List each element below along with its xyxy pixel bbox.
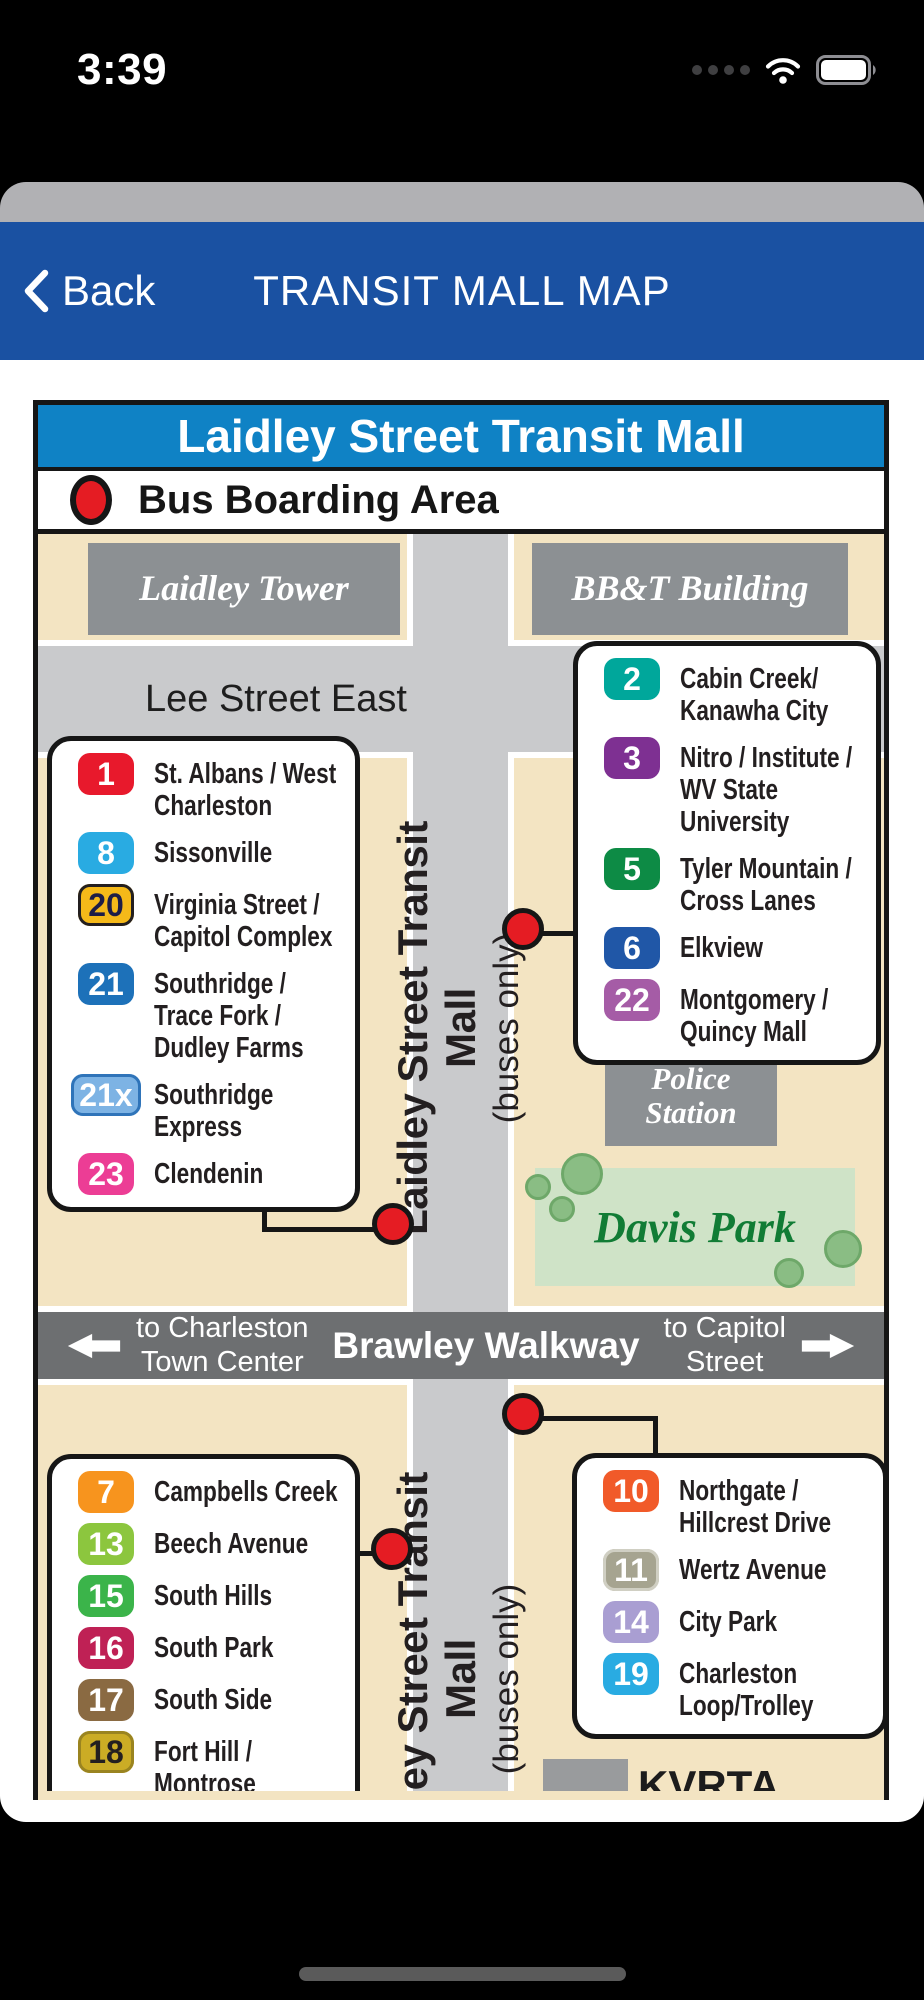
route-badge: 21x: [71, 1074, 140, 1116]
east-arrow-icon: [800, 1331, 856, 1361]
route-badge: 16: [78, 1627, 134, 1669]
route-item: 10Northgate / Hillcrest Drive: [589, 1470, 873, 1539]
nav-bar: Back TRANSIT MALL MAP: [0, 222, 924, 360]
route-badge: 3: [604, 737, 660, 779]
route-label: Nitro / Institute / WV State University: [680, 737, 852, 838]
phone-screen: 3:39 Back TRANSIT MALL MAP: [0, 0, 924, 2000]
map-title: Laidley Street Transit Mall: [38, 405, 884, 471]
route-label: South Park: [154, 1627, 273, 1664]
cellular-signal-icon: [692, 65, 750, 75]
to-charleston-label: to Charleston Town Center: [136, 1312, 309, 1379]
route-badge: 1: [78, 753, 134, 795]
route-label: South Side: [154, 1679, 272, 1716]
route-badge: 8: [78, 832, 134, 874]
route-label: Cabin Creek/ Kanawha City: [680, 658, 828, 727]
route-box-upper-left: 1St. Albans / West Charleston8Sissonvill…: [47, 736, 360, 1212]
route-box-upper-right: 2Cabin Creek/ Kanawha City3Nitro / Insti…: [573, 641, 881, 1065]
route-badge: 13: [78, 1523, 134, 1565]
route-item: 21Southridge / Trace Fork / Dudley Farms: [64, 963, 345, 1064]
page-title: TRANSIT MALL MAP: [0, 222, 924, 360]
connector-line: [653, 1416, 658, 1458]
app-card-top-strip: [0, 182, 924, 222]
clock: 3:39: [77, 45, 167, 95]
brawley-walkway-labels: to Charleston Town Center Brawley Walkwa…: [38, 1306, 884, 1385]
tree-icon: [561, 1153, 603, 1195]
route-box-lower-right: 10Northgate / Hillcrest Drive11Wertz Ave…: [572, 1453, 884, 1739]
route-item: 3Nitro / Institute / WV State University: [590, 737, 866, 838]
battery-icon: [816, 55, 878, 85]
route-item: 19Charleston Loop/Trolley: [589, 1653, 873, 1722]
route-item: 23Clendenin: [64, 1153, 345, 1195]
tree-icon: [824, 1230, 862, 1268]
home-indicator[interactable]: [299, 1967, 626, 1981]
route-badge: 20: [78, 884, 134, 926]
davis-park-label: Davis Park: [594, 1202, 796, 1253]
route-label: Northgate / Hillcrest Drive: [679, 1470, 831, 1539]
route-item: 16South Park: [64, 1627, 345, 1669]
route-label: South Hills: [154, 1575, 272, 1612]
route-badge: 17: [78, 1679, 134, 1721]
route-label: Clendenin: [154, 1153, 263, 1190]
laidley-street-label-lower: Laidley Street Transit Mall (buses only): [389, 1466, 527, 1791]
wifi-icon: [763, 55, 803, 85]
route-label: Wertz Avenue: [679, 1549, 826, 1586]
route-label: Sissonville: [154, 832, 272, 869]
route-label: Virginia Street / Capitol Complex: [154, 884, 332, 953]
building-bbt: BB&T Building: [532, 543, 848, 635]
route-label: St. Albans / West Charleston: [154, 753, 336, 822]
route-item: 22Montgomery / Quincy Mall: [590, 979, 866, 1048]
route-item: 2Cabin Creek/ Kanawha City: [590, 658, 866, 727]
route-item: 18Fort Hill / Montrose: [64, 1731, 345, 1791]
route-label: Charleston Loop/Trolley: [679, 1653, 813, 1722]
route-badge: 23: [78, 1153, 134, 1195]
route-label: Montgomery / Quincy Mall: [680, 979, 828, 1048]
route-item: 7Campbells Creek: [64, 1471, 345, 1513]
route-item: 17South Side: [64, 1679, 345, 1721]
content-area: Laidley Street Transit Mall Bus Boarding…: [0, 360, 924, 1822]
to-capitol-label: to Capitol Street: [663, 1312, 786, 1379]
route-badge: 2: [604, 658, 660, 700]
route-badge: 15: [78, 1575, 134, 1617]
route-label: Elkview: [680, 927, 763, 964]
bus-boarding-dot-icon: [70, 475, 112, 525]
route-label: Southridge / Trace Fork / Dudley Farms: [154, 963, 304, 1064]
connector-line: [528, 1416, 658, 1421]
route-item: 21xSouthridge Express: [64, 1074, 345, 1143]
transit-mall-map-image[interactable]: Laidley Street Transit Mall Bus Boarding…: [33, 400, 889, 1800]
tree-icon: [549, 1196, 575, 1222]
route-item: 5Tyler Mountain / Cross Lanes: [590, 848, 866, 917]
route-item: 13Beech Avenue: [64, 1523, 345, 1565]
route-badge: 19: [603, 1653, 659, 1695]
brawley-walkway-label: Brawley Walkway: [332, 1325, 639, 1367]
route-label: Tyler Mountain / Cross Lanes: [680, 848, 852, 917]
route-label: Fort Hill / Montrose: [154, 1731, 256, 1791]
route-item: 15South Hills: [64, 1575, 345, 1617]
route-badge: 7: [78, 1471, 134, 1513]
route-badge: 14: [603, 1601, 659, 1643]
bus-boarding-stop: [502, 1393, 544, 1435]
route-item: 8Sissonville: [64, 832, 345, 874]
building-laidley-tower: Laidley Tower: [88, 543, 400, 635]
route-badge: 10: [603, 1470, 659, 1512]
tree-icon: [525, 1174, 551, 1200]
route-label: City Park: [679, 1601, 777, 1638]
kvrta-label: KVRTA: [638, 1762, 780, 1791]
route-item: 6Elkview: [590, 927, 866, 969]
route-badge: 22: [604, 979, 660, 1021]
route-item: 20Virginia Street / Capitol Complex: [64, 884, 345, 953]
route-label: Beech Avenue: [154, 1523, 308, 1560]
bus-boarding-stop: [371, 1528, 413, 1570]
route-badge: 18: [78, 1731, 134, 1773]
legend-label: Bus Boarding Area: [138, 478, 499, 523]
map-canvas: Laidley Street Transit Mall (buses only)…: [38, 534, 884, 1791]
laidley-street-label-upper: Laidley Street Transit Mall (buses only): [389, 815, 527, 1241]
bus-boarding-stop: [502, 908, 544, 950]
route-item: 14City Park: [589, 1601, 873, 1643]
route-item: 11Wertz Avenue: [589, 1549, 873, 1591]
tree-icon: [774, 1258, 804, 1288]
route-label: Southridge Express: [154, 1074, 273, 1143]
bus-boarding-stop: [372, 1203, 414, 1245]
route-badge: 11: [603, 1549, 659, 1591]
west-arrow-icon: [66, 1331, 122, 1361]
status-bar: 3:39: [0, 0, 924, 130]
route-badge: 6: [604, 927, 660, 969]
route-box-lower-left: 7Campbells Creek13Beech Avenue15South Hi…: [47, 1454, 360, 1791]
legend-row: Bus Boarding Area: [38, 471, 884, 534]
route-item: 1St. Albans / West Charleston: [64, 753, 345, 822]
route-badge: 5: [604, 848, 660, 890]
building-kvrta: [543, 1759, 628, 1791]
route-label: Campbells Creek: [154, 1471, 338, 1508]
route-badge: 21: [78, 963, 134, 1005]
